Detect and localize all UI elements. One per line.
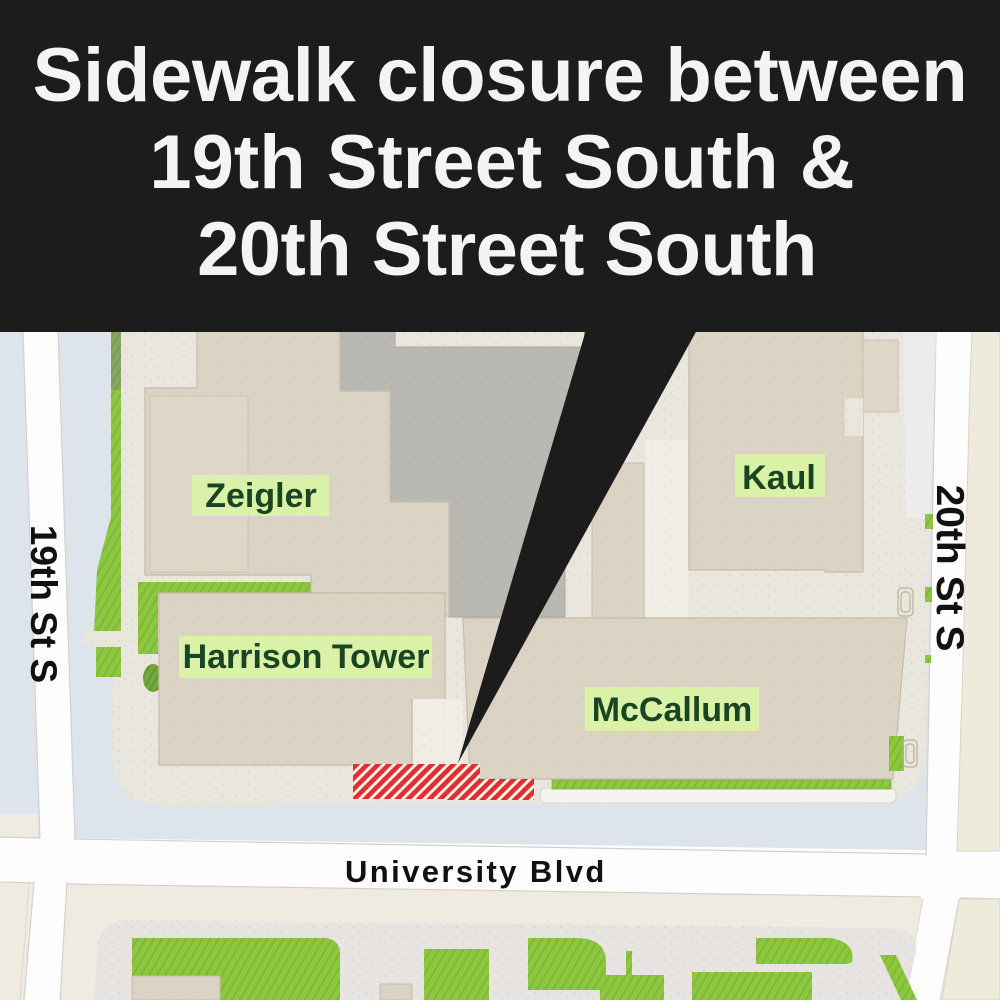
svg-text:19th Street South &: 19th Street South & bbox=[149, 120, 854, 205]
svg-text:20th Street South: 20th Street South bbox=[197, 207, 817, 292]
svg-text:20th St S: 20th St S bbox=[928, 485, 971, 652]
svg-text:Sidewalk closure between: Sidewalk closure between bbox=[33, 33, 968, 118]
svg-text:Harrison Tower: Harrison Tower bbox=[183, 638, 430, 676]
svg-text:McCallum: McCallum bbox=[592, 691, 753, 729]
svg-text:19th St S: 19th St S bbox=[23, 525, 64, 683]
svg-text:University Blvd: University Blvd bbox=[345, 854, 607, 889]
svg-text:Kaul: Kaul bbox=[742, 459, 816, 497]
svg-text:Zeigler: Zeigler bbox=[205, 477, 316, 515]
